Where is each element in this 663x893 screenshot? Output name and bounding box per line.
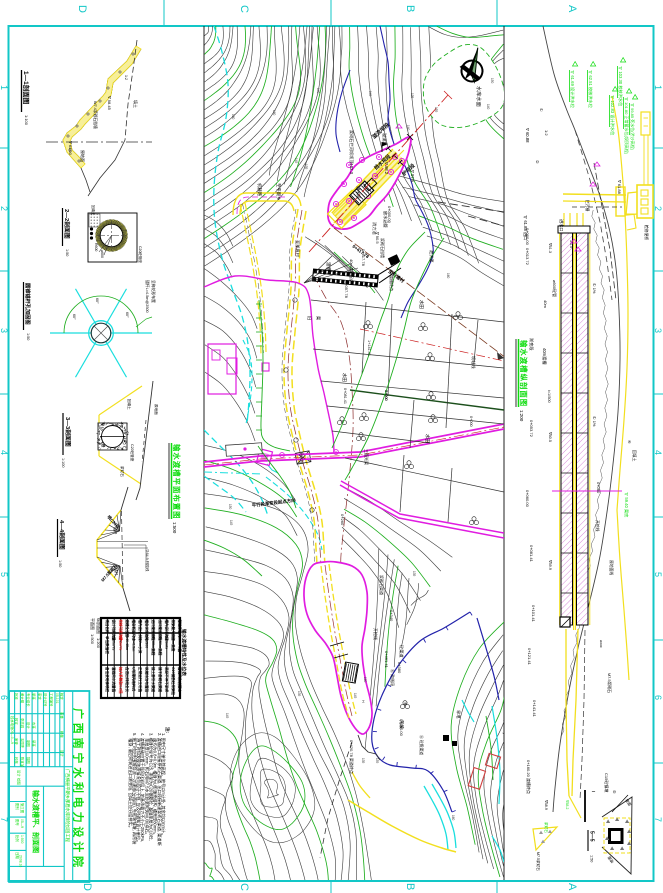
svg-text:∇ 61.69 设计洪水位: ∇ 61.69 设计洪水位 bbox=[569, 70, 576, 108]
svg-text:水田: 水田 bbox=[341, 373, 348, 382]
svg-text:吴某: 吴某 bbox=[32, 740, 37, 747]
svg-text:05—9: 05—9 bbox=[20, 819, 24, 828]
svg-text:1:50: 1:50 bbox=[65, 249, 69, 256]
svg-text:B: B bbox=[404, 5, 416, 12]
svg-text:浆砌石渠道: 浆砌石渠道 bbox=[379, 575, 385, 595]
svg-text:∇ 102.83 设计洪水位: ∇ 102.83 设计洪水位 bbox=[609, 95, 616, 135]
svg-text:校核: 校核 bbox=[14, 757, 19, 764]
svg-text:A: A bbox=[566, 5, 578, 13]
svg-text:∇ 61.88: ∇ 61.88 bbox=[617, 179, 622, 195]
svg-text:1:100: 1:100 bbox=[24, 115, 29, 126]
svg-text:2008.10: 2008.10 bbox=[19, 855, 23, 867]
svg-text:⑥: ⑥ bbox=[403, 702, 408, 706]
svg-text:基础承载力: 基础承载力 bbox=[178, 620, 183, 638]
svg-text:∇ 99.85 死水位(淤沙高程): ∇ 99.85 死水位(淤沙高程) bbox=[630, 103, 636, 151]
svg-text:0+081.41: 0+081.41 bbox=[343, 388, 347, 404]
svg-text:C20砼管座: C20砼管座 bbox=[130, 444, 135, 462]
svg-text:原地面线: 原地面线 bbox=[609, 560, 614, 575]
svg-text:∇ 97.5: ∇ 97.5 bbox=[410, 169, 415, 183]
svg-text:C: C bbox=[238, 883, 250, 891]
svg-text:∇ 62.51 校核洪水位: ∇ 62.51 校核洪水位 bbox=[587, 70, 594, 108]
svg-text:C20钢筋砼排架柱: C20钢筋砼排架柱 bbox=[171, 667, 176, 696]
svg-text:0+160.20 渡槽终点: 0+160.20 渡槽终点 bbox=[526, 760, 532, 794]
svg-text:机耕路: 机耕路 bbox=[256, 183, 263, 197]
svg-text:5—5: 5—5 bbox=[589, 831, 595, 842]
svg-text:⑤: ⑤ bbox=[612, 790, 617, 794]
svg-text:旧: 旧 bbox=[306, 316, 313, 320]
svg-text:160: 160 bbox=[231, 114, 235, 120]
svg-text:4: 4 bbox=[0, 450, 9, 455]
svg-text:原地面: 原地面 bbox=[80, 150, 86, 162]
svg-text:进水口: 进水口 bbox=[558, 219, 565, 232]
svg-text:6: 6 bbox=[0, 695, 9, 700]
svg-text:150: 150 bbox=[228, 504, 232, 510]
svg-text:输水渡槽平面布置图: 输水渡槽平面布置图 bbox=[172, 444, 181, 520]
svg-text:砼渠道: 砼渠道 bbox=[398, 645, 405, 658]
svg-text:0+053.72: 0+053.72 bbox=[529, 420, 534, 438]
svg-text:审查: 审查 bbox=[59, 712, 64, 719]
svg-text:3—3剖面图: 3—3剖面图 bbox=[64, 417, 72, 447]
svg-text:④: ④ bbox=[627, 440, 632, 444]
svg-text:140: 140 bbox=[406, 125, 410, 131]
svg-text:渐变段: 渐变段 bbox=[528, 338, 535, 351]
svg-text:0+141.41: 0+141.41 bbox=[532, 700, 537, 718]
svg-text:U形薄壳结构式: U形薄壳结构式 bbox=[132, 667, 137, 692]
svg-text:0+480.00: 0+480.00 bbox=[399, 719, 404, 737]
svg-text:H: H bbox=[361, 700, 365, 703]
svg-text:∇ 60.88: ∇ 60.88 bbox=[525, 127, 530, 143]
svg-text:接下游砌石渠道: 接下游砌石渠道 bbox=[158, 667, 163, 693]
svg-text:1:100: 1:100 bbox=[61, 458, 65, 468]
svg-text:5: 5 bbox=[653, 572, 663, 577]
svg-text:0+461.41: 0+461.41 bbox=[384, 651, 389, 669]
svg-text:接上游引水渠道: 接上游引水渠道 bbox=[151, 667, 156, 693]
svg-text:水田: 水田 bbox=[418, 300, 425, 309]
svg-text:145: 145 bbox=[225, 713, 229, 719]
svg-text:1:50: 1:50 bbox=[58, 560, 62, 567]
svg-text:进水闸: 进水闸 bbox=[355, 186, 362, 199]
svg-text:纵剖面图 1:200: 纵剖面图 1:200 bbox=[96, 618, 102, 649]
svg-text:i=1/500: i=1/500 bbox=[547, 390, 551, 403]
svg-text:⑥ 改线段: ⑥ 改线段 bbox=[390, 669, 396, 686]
svg-text:1—1剖面图: 1—1剖面图 bbox=[22, 71, 31, 105]
svg-text:140: 140 bbox=[486, 104, 490, 110]
svg-text:比例: 比例 bbox=[15, 835, 20, 842]
svg-text:0.60m³/s: 0.60m³/s bbox=[112, 636, 116, 650]
svg-text:0+121.41: 0+121.41 bbox=[527, 648, 532, 666]
svg-text:浆砌石: 浆砌石 bbox=[120, 466, 125, 477]
svg-text:40m: 40m bbox=[543, 300, 548, 308]
svg-text:C15砼镇墩: C15砼镇墩 bbox=[604, 773, 610, 792]
svg-text:4: 4 bbox=[653, 450, 663, 455]
svg-text:农某: 农某 bbox=[32, 722, 37, 729]
svg-text:∇60.5: ∇60.5 bbox=[548, 431, 552, 442]
svg-text:R600: R600 bbox=[94, 243, 98, 251]
svg-text:⑥ 砼质渠道: ⑥ 砼质渠道 bbox=[419, 735, 424, 755]
svg-text:40m渡槽起点: 40m渡槽起点 bbox=[349, 259, 355, 283]
svg-text:梁某: 梁某 bbox=[32, 693, 37, 700]
svg-text:7: 7 bbox=[653, 817, 663, 822]
svg-text:4—4剖面图: 4—4剖面图 bbox=[58, 520, 66, 550]
svg-text:60°: 60° bbox=[125, 312, 129, 318]
svg-text:纵坡均匀布置段: 纵坡均匀布置段 bbox=[145, 667, 150, 693]
svg-text:0+060.00: 0+060.00 bbox=[525, 490, 530, 508]
svg-text:李志强: 李志强 bbox=[20, 718, 25, 729]
svg-text:设计: 设计 bbox=[26, 722, 31, 729]
svg-text:1:2: 1:2 bbox=[124, 75, 128, 80]
svg-text:黄大明: 黄大明 bbox=[20, 693, 25, 704]
svg-text:锚杆: 锚杆 bbox=[113, 527, 118, 535]
svg-text:回填土: 回填土 bbox=[127, 399, 132, 410]
svg-text:渡槽全长度: 渡槽全长度 bbox=[125, 620, 130, 638]
svg-text:水田: 水田 bbox=[424, 434, 431, 443]
svg-text:0+060: 0+060 bbox=[596, 482, 601, 494]
svg-text:输水渡槽纵剖面图: 输水渡槽纵剖面图 bbox=[519, 340, 528, 407]
svg-text:250kPa值: 250kPa值 bbox=[178, 636, 183, 652]
svg-text:∇ 98.45: ∇ 98.45 bbox=[107, 95, 112, 111]
svg-text:回填土: 回填土 bbox=[91, 205, 96, 216]
svg-text:3+000: 3+000 bbox=[384, 390, 388, 401]
svg-text:灌溉用水流量值: 灌溉用水流量值 bbox=[112, 667, 117, 693]
svg-text:广西横县平朗乡那眉水库除险加固工程: 广西横县平朗乡那眉水库除险加固工程 bbox=[64, 769, 71, 843]
svg-text:A: A bbox=[566, 883, 578, 891]
svg-text:146.48m: 146.48m bbox=[125, 636, 129, 650]
svg-text:1: 1 bbox=[653, 85, 663, 90]
svg-text:⌀xxx: ⌀xxx bbox=[599, 640, 603, 648]
svg-text:施工图: 施工图 bbox=[20, 803, 25, 814]
svg-text:校核: 校核 bbox=[59, 731, 64, 738]
svg-text:核定: 核定 bbox=[14, 718, 19, 725]
svg-text:0.8×0.9m: 0.8×0.9m bbox=[132, 636, 136, 651]
svg-text:1:2: 1:2 bbox=[544, 130, 549, 136]
svg-text:1:50: 1:50 bbox=[26, 333, 30, 340]
svg-text:135: 135 bbox=[412, 571, 416, 577]
svg-text:0+260: 0+260 bbox=[340, 514, 345, 526]
svg-text:绘图: 绘图 bbox=[17, 778, 22, 785]
svg-text:∇ 103.30 校核洪水位: ∇ 103.30 校核洪水位 bbox=[617, 66, 624, 106]
svg-text:0+013.72: 0+013.72 bbox=[525, 248, 530, 266]
svg-text:⌀600: ⌀600 bbox=[100, 250, 104, 258]
svg-text:正常运行工况值: 正常运行工况值 bbox=[138, 667, 143, 693]
svg-text:陈某某: 陈某某 bbox=[20, 757, 25, 768]
svg-text:0.62m水深: 0.62m水深 bbox=[138, 636, 143, 654]
svg-text:0+057.78: 0+057.78 bbox=[344, 281, 349, 299]
svg-text:⌀600砼管: ⌀600砼管 bbox=[552, 280, 558, 297]
svg-text:0+000: 0+000 bbox=[469, 416, 473, 427]
svg-text:设计: 设计 bbox=[59, 750, 64, 757]
svg-text:工程编号: 工程编号 bbox=[49, 693, 54, 707]
svg-text:设计: 设计 bbox=[17, 770, 22, 777]
svg-text:描图: 描图 bbox=[26, 757, 31, 764]
svg-text:填土: 填土 bbox=[133, 100, 139, 108]
svg-text:60°: 60° bbox=[95, 298, 99, 304]
svg-text:锚杆L=4.5m@2500: 锚杆L=4.5m@2500 bbox=[145, 280, 150, 313]
svg-text:0+380: 0+380 bbox=[397, 662, 402, 674]
svg-text:135: 135 bbox=[361, 758, 365, 764]
svg-text:1:200: 1:200 bbox=[519, 410, 524, 422]
svg-text:呈梅花形布置: 呈梅花形布置 bbox=[151, 280, 156, 303]
svg-text:韦国先: 韦国先 bbox=[20, 738, 25, 749]
svg-text:泄洪渠: 泄洪渠 bbox=[428, 250, 435, 263]
svg-text:图别: 图别 bbox=[15, 803, 20, 810]
svg-text:C: C bbox=[238, 5, 250, 13]
svg-text:批准: 批准 bbox=[14, 693, 19, 700]
svg-text:W7.4浆砌石挡墙: W7.4浆砌石挡墙 bbox=[93, 101, 98, 129]
svg-text:135: 135 bbox=[304, 164, 308, 170]
svg-text:浆砌石拦河坝坝顶102.3: 浆砌石拦河坝坝顶102.3 bbox=[348, 130, 355, 175]
svg-text:3: 3 bbox=[0, 328, 9, 333]
svg-text:拦污栅: 拦污栅 bbox=[585, 200, 590, 212]
svg-text:含进出口段全长: 含进出口段全长 bbox=[125, 666, 130, 693]
svg-text:∇ 98.2: ∇ 98.2 bbox=[384, 161, 389, 175]
svg-text:155: 155 bbox=[434, 107, 438, 113]
svg-text:6: 6 bbox=[653, 695, 663, 700]
svg-text:至那眉村: 至那眉村 bbox=[294, 240, 301, 258]
svg-text:满足不冲不淤求: 满足不冲不淤求 bbox=[164, 667, 169, 693]
svg-text:160: 160 bbox=[446, 273, 450, 279]
svg-text:i=1/500: i=1/500 bbox=[145, 636, 149, 648]
svg-text:渡槽: 渡槽 bbox=[325, 262, 332, 271]
svg-text:旱地: 旱地 bbox=[455, 710, 462, 719]
svg-text:开挖线: 开挖线 bbox=[595, 520, 600, 532]
svg-text:0+000.00: 0+000.00 bbox=[525, 228, 530, 246]
svg-text:0.72m³/s: 0.72m³/s bbox=[118, 636, 122, 650]
svg-text:回填土: 回填土 bbox=[632, 450, 637, 462]
svg-text:开挖线: 开挖线 bbox=[373, 628, 379, 640]
svg-text:1+141.41: 1+141.41 bbox=[367, 340, 371, 356]
svg-text:平面图 1:500: 平面图 1:500 bbox=[90, 618, 96, 645]
svg-text:M7.5浆砌石: M7.5浆砌石 bbox=[607, 673, 612, 693]
svg-text:0+340: 0+340 bbox=[389, 610, 394, 622]
svg-text:∇61.3: ∇61.3 bbox=[548, 242, 552, 253]
svg-text:1.21m/s: 1.21m/s bbox=[164, 636, 168, 649]
svg-text:加大系数取1.2倍: 加大系数取1.2倍 bbox=[118, 666, 123, 694]
svg-text:单位数值栏: 单位数值栏 bbox=[105, 636, 110, 654]
svg-text:桂水电施05—0—9: 桂水电施05—0—9 bbox=[10, 716, 15, 744]
svg-text:145: 145 bbox=[368, 91, 372, 97]
svg-text:2: 2 bbox=[0, 206, 9, 211]
svg-text:广西南宁水利电力设计院: 广西南宁水利电力设计院 bbox=[72, 708, 86, 871]
svg-text:设计证号: 设计证号 bbox=[43, 693, 48, 707]
svg-text:8.5m高度: 8.5m高度 bbox=[171, 636, 176, 652]
svg-text:置强风化岩层上: 置强风化岩层上 bbox=[178, 667, 183, 693]
svg-text:至平朗乡: 至平朗乡 bbox=[275, 183, 282, 201]
svg-text:∇ 90.5: ∇ 90.5 bbox=[375, 231, 380, 244]
svg-text:水库水面: 水库水面 bbox=[475, 86, 483, 107]
svg-text:05-101: 05-101 bbox=[55, 693, 59, 704]
svg-text:D: D bbox=[76, 5, 88, 13]
svg-text:备注说明事项栏: 备注说明事项栏 bbox=[105, 666, 110, 693]
svg-text:135: 135 bbox=[297, 691, 301, 697]
svg-text:∇ 59.40 渠底: ∇ 59.40 渠底 bbox=[623, 492, 630, 517]
svg-text:145: 145 bbox=[353, 693, 357, 699]
svg-text:渡槽终点: 渡槽终点 bbox=[389, 275, 395, 291]
svg-text:2—2剖面图: 2—2剖面图 bbox=[63, 209, 71, 239]
svg-text:40m渡槽: 40m渡槽 bbox=[541, 348, 548, 365]
svg-text:135: 135 bbox=[410, 93, 414, 99]
svg-text:① 1%: ① 1% bbox=[592, 283, 597, 294]
svg-text:审查: 审查 bbox=[14, 738, 19, 745]
svg-text:5: 5 bbox=[0, 572, 9, 577]
svg-text:160: 160 bbox=[451, 815, 455, 821]
svg-text:7: 7 bbox=[0, 817, 9, 822]
svg-text:0+420.78 渠道终点: 0+420.78 渠道终点 bbox=[349, 740, 355, 774]
svg-text:∇59.9: ∇59.9 bbox=[548, 559, 552, 570]
svg-text:锚杆: 锚杆 bbox=[114, 568, 119, 576]
svg-text:专业组长: 专业组长 bbox=[26, 693, 31, 707]
svg-text:审定: 审定 bbox=[37, 693, 42, 700]
svg-text:1:500: 1:500 bbox=[20, 835, 24, 844]
svg-text:D: D bbox=[81, 883, 93, 891]
svg-text:0+081.41: 0+081.41 bbox=[529, 545, 534, 563]
svg-text:分水砼: 分水砼 bbox=[299, 452, 305, 464]
svg-text:B: B bbox=[404, 883, 416, 890]
svg-text:140: 140 bbox=[316, 88, 320, 94]
svg-text:坝轴线: 坝轴线 bbox=[470, 356, 477, 369]
svg-text:160: 160 bbox=[272, 110, 276, 116]
svg-text:① 1%: ① 1% bbox=[592, 416, 597, 427]
svg-text:①: ① bbox=[539, 108, 544, 112]
svg-text:Ⅰ: Ⅰ bbox=[591, 791, 596, 792]
svg-text:60°: 60° bbox=[72, 314, 76, 320]
svg-text:160: 160 bbox=[363, 677, 367, 683]
svg-text:0+017.78: 0+017.78 bbox=[361, 249, 366, 267]
svg-text:槽身, 最后砌筑进出口渐变段, 回填土应分层夯实。: 槽身, 最后砌筑进出口渐变段, 回填土应分层夯实。 bbox=[128, 733, 134, 830]
svg-text:M7.5浆砌石: M7.5浆砌石 bbox=[536, 852, 541, 871]
svg-text:3: 3 bbox=[653, 328, 663, 333]
svg-text:项目名称: 项目名称 bbox=[105, 620, 110, 634]
svg-text:检修便桥: 检修便桥 bbox=[644, 225, 649, 240]
svg-text:145: 145 bbox=[229, 520, 233, 526]
svg-text:C20砼管座: C20砼管座 bbox=[138, 246, 143, 263]
svg-text:圆锥锚杆孔加固图: 圆锥锚杆孔加固图 bbox=[24, 283, 32, 325]
svg-text:浆砌石: 浆砌石 bbox=[544, 822, 549, 833]
svg-text:图号: 图号 bbox=[15, 819, 20, 826]
svg-text:∇ 64.90: ∇ 64.90 bbox=[68, 140, 73, 156]
svg-text:150: 150 bbox=[490, 78, 494, 84]
svg-text:原地面: 原地面 bbox=[154, 404, 159, 415]
svg-text:核定: 核定 bbox=[59, 693, 64, 700]
svg-text:1: 1 bbox=[0, 85, 9, 90]
svg-text:2: 2 bbox=[653, 206, 663, 211]
svg-text:1:50: 1:50 bbox=[590, 855, 594, 862]
svg-text:1:500: 1:500 bbox=[172, 522, 177, 534]
svg-text:输水渡槽平、剖面图: 输水渡槽平、剖面图 bbox=[32, 790, 41, 853]
svg-text:∇58.2: ∇58.2 bbox=[565, 799, 569, 809]
svg-text:61.88m高程: 61.88m高程 bbox=[151, 636, 156, 656]
svg-text:②: ② bbox=[535, 160, 540, 164]
svg-text:∇58.9: ∇58.9 bbox=[544, 799, 548, 810]
svg-text:0+101.41: 0+101.41 bbox=[531, 605, 536, 623]
svg-text:浆砌石挡墙: 浆砌石挡墙 bbox=[380, 238, 386, 258]
svg-text:61.59m高程: 61.59m高程 bbox=[158, 636, 163, 656]
svg-text:溢流堰: 溢流堰 bbox=[381, 133, 388, 146]
svg-text:放水涵管: 放水涵管 bbox=[382, 211, 389, 228]
svg-text:制图: 制图 bbox=[26, 740, 31, 747]
svg-text:三面光渠: 三面光渠 bbox=[364, 449, 370, 465]
svg-text:155: 155 bbox=[375, 758, 379, 764]
svg-text:145: 145 bbox=[294, 158, 298, 164]
